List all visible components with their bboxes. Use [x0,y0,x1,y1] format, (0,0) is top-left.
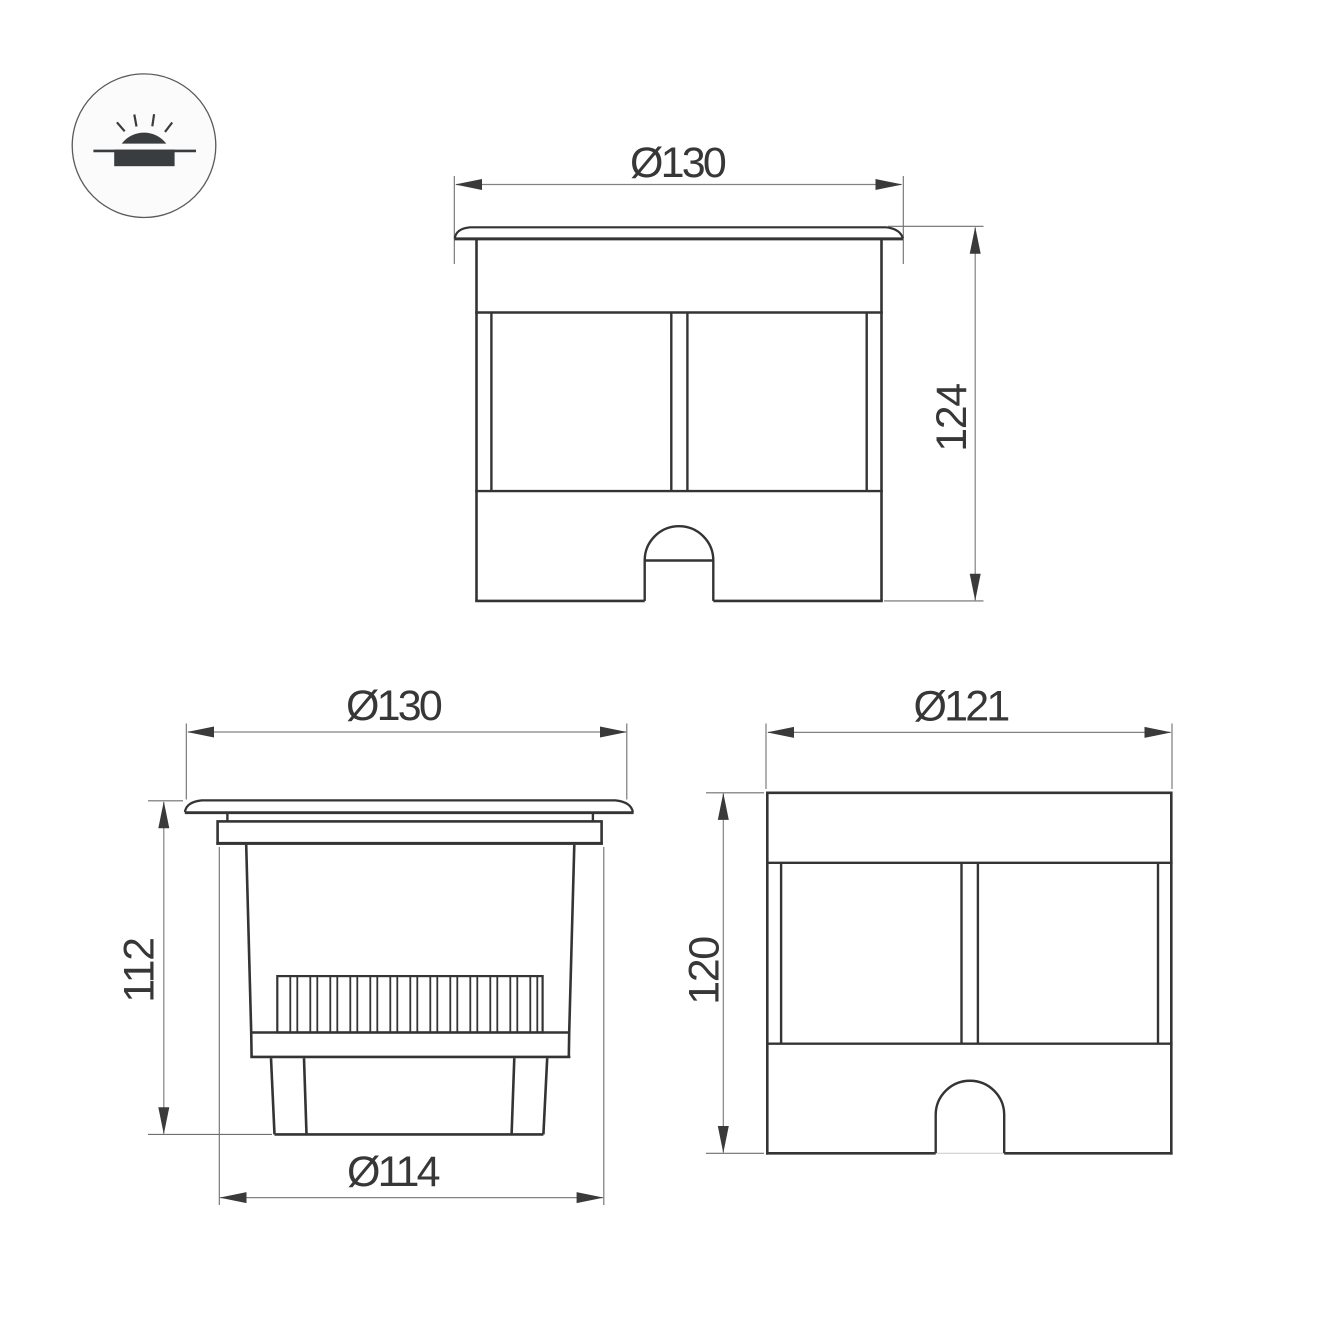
svg-text:Ø121: Ø121 [914,682,1009,730]
svg-text:Ø130: Ø130 [630,139,726,187]
svg-text:Ø114: Ø114 [347,1148,440,1196]
svg-text:Ø130: Ø130 [346,682,442,730]
svg-text:124: 124 [928,384,976,452]
svg-text:112: 112 [116,938,164,1002]
svg-text:120: 120 [681,937,729,1005]
